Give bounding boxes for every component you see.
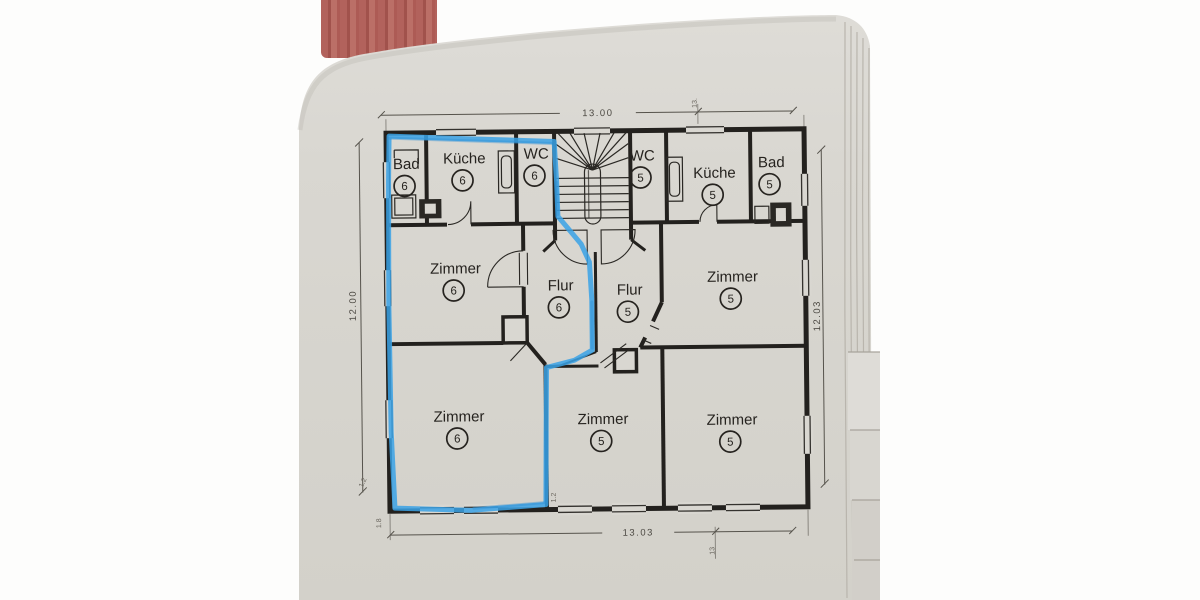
room-name: Bad (393, 156, 420, 173)
room-number: 6 (556, 302, 563, 314)
page-stack-steps (848, 352, 880, 600)
room-name: Zimmer (430, 260, 481, 278)
room-name: Küche (443, 150, 486, 167)
floorplan-photo-svg: 13.00 13.03 12.00 12.03 13. 13 1.2 1.8 1… (0, 0, 1200, 600)
room-number: 5 (709, 190, 716, 202)
room-name: Flur (617, 282, 643, 299)
room-number: 6 (459, 175, 466, 187)
room-name: WC (524, 145, 549, 162)
room-number: 6 (450, 285, 457, 297)
room-name: Flur (548, 277, 574, 294)
room-name: Küche (693, 165, 736, 182)
room-name: Zimmer (707, 268, 758, 286)
tick-label-3: 1.2 (551, 492, 558, 502)
room-number: 5 (598, 436, 605, 448)
dim-top: 13.00 (582, 108, 613, 119)
room-number: 5 (637, 173, 644, 185)
room-number: 6 (531, 171, 538, 183)
dim-left: 12.00 (348, 290, 359, 321)
room-name: Zimmer (578, 411, 629, 429)
room-name: WC (630, 147, 655, 164)
room-number: 5 (727, 437, 734, 449)
room-name: Zimmer (434, 408, 485, 426)
dim-right: 12.03 (812, 300, 823, 331)
room-number: 5 (625, 307, 632, 319)
room-number: 6 (454, 433, 461, 445)
dim-bottom-right-small: 13 (709, 547, 716, 555)
room-name: Bad (758, 154, 785, 171)
room-name: Zimmer (707, 411, 758, 429)
tick-label-2: 1.8 (376, 518, 383, 528)
room-number: 5 (728, 294, 735, 306)
room-number: 6 (401, 181, 408, 193)
dim-top-right-small: 13. (692, 98, 699, 108)
dim-bottom: 13.03 (623, 527, 654, 538)
photo-scene: 13.00 13.03 12.00 12.03 13. 13 1.2 1.8 1… (0, 0, 1200, 600)
room-number: 5 (766, 179, 773, 191)
